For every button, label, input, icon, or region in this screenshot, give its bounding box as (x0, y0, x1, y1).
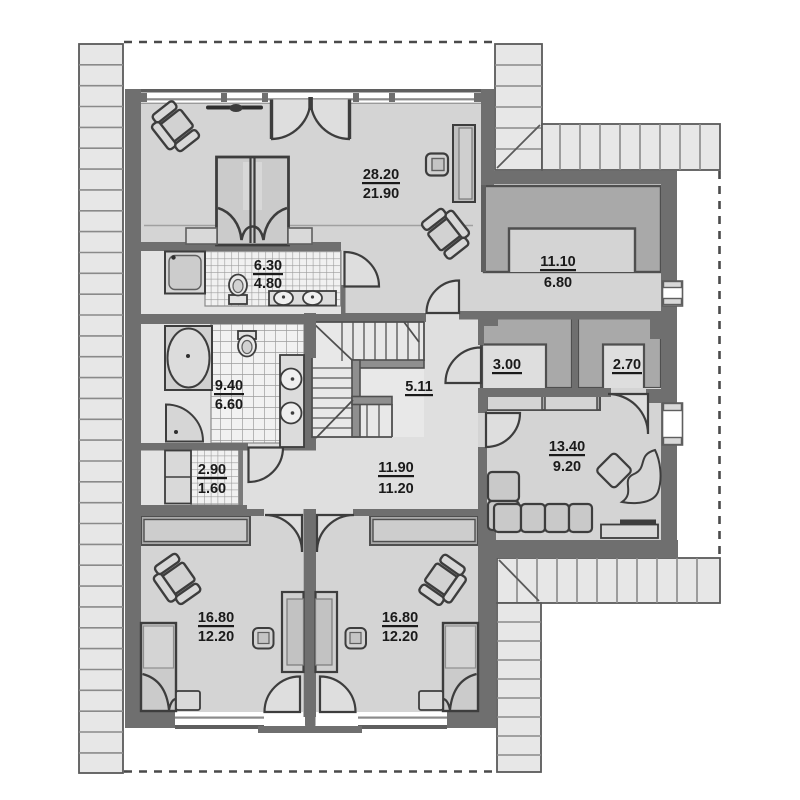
svg-text:9.40: 9.40 (215, 378, 243, 394)
svg-text:1.60: 1.60 (198, 481, 226, 497)
svg-text:3.00: 3.00 (493, 357, 521, 373)
svg-text:13.40: 13.40 (549, 439, 585, 455)
svg-text:12.20: 12.20 (382, 629, 418, 645)
svg-text:4.80: 4.80 (254, 276, 282, 292)
svg-text:11.10: 11.10 (540, 254, 576, 270)
svg-text:11.20: 11.20 (378, 481, 414, 497)
svg-text:16.80: 16.80 (382, 610, 418, 626)
svg-text:11.90: 11.90 (378, 460, 414, 476)
svg-text:21.90: 21.90 (363, 186, 399, 202)
svg-text:16.80: 16.80 (198, 610, 234, 626)
svg-text:6.80: 6.80 (544, 275, 572, 291)
svg-text:12.20: 12.20 (198, 629, 234, 645)
svg-text:28.20: 28.20 (363, 167, 399, 183)
svg-text:2.70: 2.70 (613, 357, 641, 373)
svg-text:6.30: 6.30 (254, 258, 282, 274)
svg-text:9.20: 9.20 (553, 459, 581, 475)
svg-text:2.90: 2.90 (198, 462, 226, 478)
svg-text:6.60: 6.60 (215, 397, 243, 413)
svg-text:5.11: 5.11 (405, 379, 432, 395)
